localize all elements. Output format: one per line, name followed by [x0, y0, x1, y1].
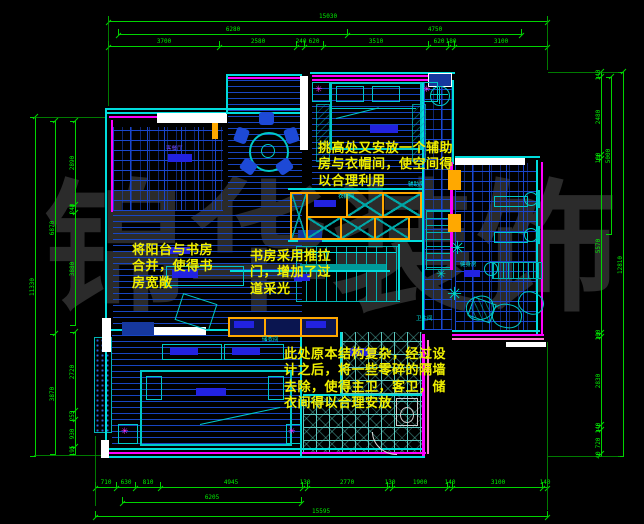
- room-label-bath: 卫生间: [416, 316, 433, 322]
- lamp-icon: ✳: [288, 428, 296, 437]
- room-label-gym: 健身房: [460, 262, 477, 268]
- pillow: [336, 86, 364, 102]
- extension-line: [547, 16, 548, 70]
- dim-bottom-chain: 710 630 810 4945 130 2770 130 1900 140 3…: [95, 476, 548, 488]
- extension-line: [108, 16, 109, 106]
- wall: [226, 77, 302, 79]
- wall: [108, 452, 426, 454]
- dresser-label-fill: [170, 348, 198, 355]
- dresser-label-fill: [232, 348, 260, 355]
- wardrobe-unit: [264, 317, 302, 337]
- cabinet-fill: [122, 322, 154, 335]
- wall: [452, 330, 540, 332]
- gym-bench-wheel: [484, 262, 498, 276]
- wall: [105, 456, 425, 458]
- gym-machine-wheel: [524, 228, 538, 242]
- wall: [111, 120, 113, 212]
- annotation-note3: 书房采用推拉门，增加了过道采光: [250, 249, 344, 298]
- wardrobe-unit: [374, 216, 410, 240]
- extension-line: [95, 436, 96, 506]
- wall: [105, 108, 107, 458]
- pillow: [146, 376, 162, 400]
- annotation-note1: 挑高处又安放一个辅助房与衣帽间，使空间得以合理利用: [318, 141, 458, 190]
- wall-white: [157, 113, 227, 123]
- room-label-foyer: 客餐厅: [166, 146, 183, 152]
- extension-line: [548, 72, 620, 73]
- plant-icon: ✳: [436, 268, 446, 280]
- dim-bottom-overall: 15595: [95, 505, 548, 517]
- plant-icon: ✳: [447, 286, 462, 304]
- wall-white: [101, 440, 109, 458]
- wall: [105, 108, 302, 110]
- wardrobe-unit: [340, 216, 376, 240]
- extension-line: [34, 455, 106, 456]
- cabinet: [448, 214, 461, 232]
- gym-bench: [492, 262, 542, 279]
- dim-left-chain-lower: 2720 255 930 195: [70, 332, 82, 455]
- cad-floorplan-canvas: 锦华装饰 15030 6280 4750 3700 2580 240 620 3…: [0, 0, 644, 524]
- wall: [226, 74, 302, 76]
- wardrobe-label-fill: [306, 321, 326, 328]
- dim-left-chain-upper: 2890 240 3880: [70, 121, 82, 326]
- wardrobe-label-fill: [314, 200, 336, 207]
- wall-pink: [452, 338, 544, 340]
- annotation-note2: 将阳台与书房合并，使得书房宽敞: [132, 243, 220, 292]
- wall: [109, 116, 159, 118]
- wall-white: [506, 342, 546, 347]
- room-label-closet: 衣帽间: [338, 194, 355, 200]
- living-label-fill: [168, 154, 192, 162]
- wall: [452, 334, 544, 336]
- wall-white: [102, 318, 111, 352]
- pillow: [268, 376, 284, 400]
- dim-right-overall: 12810: [618, 72, 630, 457]
- dim-bottom-mid: 6205: [122, 491, 302, 503]
- room-label-storage: 储衣间: [262, 337, 279, 343]
- annotation-note4: 此处原本结构复杂，经过设计之后，将一些零碎的隔墙去除，使得主卫，客卫，储衣间得以…: [284, 347, 452, 412]
- extension-line: [547, 342, 548, 510]
- wall-white: [455, 158, 525, 165]
- dining-table-center: [261, 144, 275, 158]
- wall: [105, 448, 425, 450]
- wardrobe-label-fill: [234, 321, 254, 328]
- bed-label-fill: [370, 125, 398, 133]
- lamp-icon: ✳: [315, 86, 323, 95]
- plant-icon: ✳: [450, 240, 465, 258]
- gym-label-fill: [464, 270, 480, 277]
- extension-line: [548, 456, 620, 457]
- gym-machine: [494, 196, 528, 207]
- gym-machine-wheel: [524, 192, 538, 206]
- gym-machine-handle: [537, 226, 540, 244]
- dim-right-secondary: 5000: [606, 77, 618, 235]
- dim-top-chain: 3700 2580 240 620 3510 620 180 3100: [108, 35, 548, 47]
- bed2-label-fill: [196, 388, 226, 396]
- floor-living-brick: [113, 127, 223, 211]
- entry-door: [212, 123, 218, 139]
- wall-white: [300, 76, 308, 150]
- dim-left-overall: 11330: [30, 117, 42, 457]
- chair: [259, 112, 274, 125]
- gym-machine-handle: [537, 190, 540, 208]
- dim-top-row2: 6280 4750: [118, 23, 522, 35]
- extension-line: [34, 117, 106, 118]
- pillow: [372, 86, 400, 102]
- dim-top-overall: 15030: [108, 10, 548, 22]
- wardrobe-unit: [306, 216, 342, 240]
- lamp-icon: ✳: [121, 428, 129, 437]
- wardrobe-unit: [382, 192, 422, 218]
- wall: [226, 76, 228, 114]
- wall-white: [148, 327, 206, 335]
- ceiling-fan-icon: [430, 86, 450, 106]
- wall: [455, 156, 540, 158]
- fan-blade: [439, 87, 440, 104]
- dim-left-row2: 6870 3870: [50, 121, 62, 455]
- gym-machine: [494, 232, 528, 243]
- wall: [398, 244, 400, 300]
